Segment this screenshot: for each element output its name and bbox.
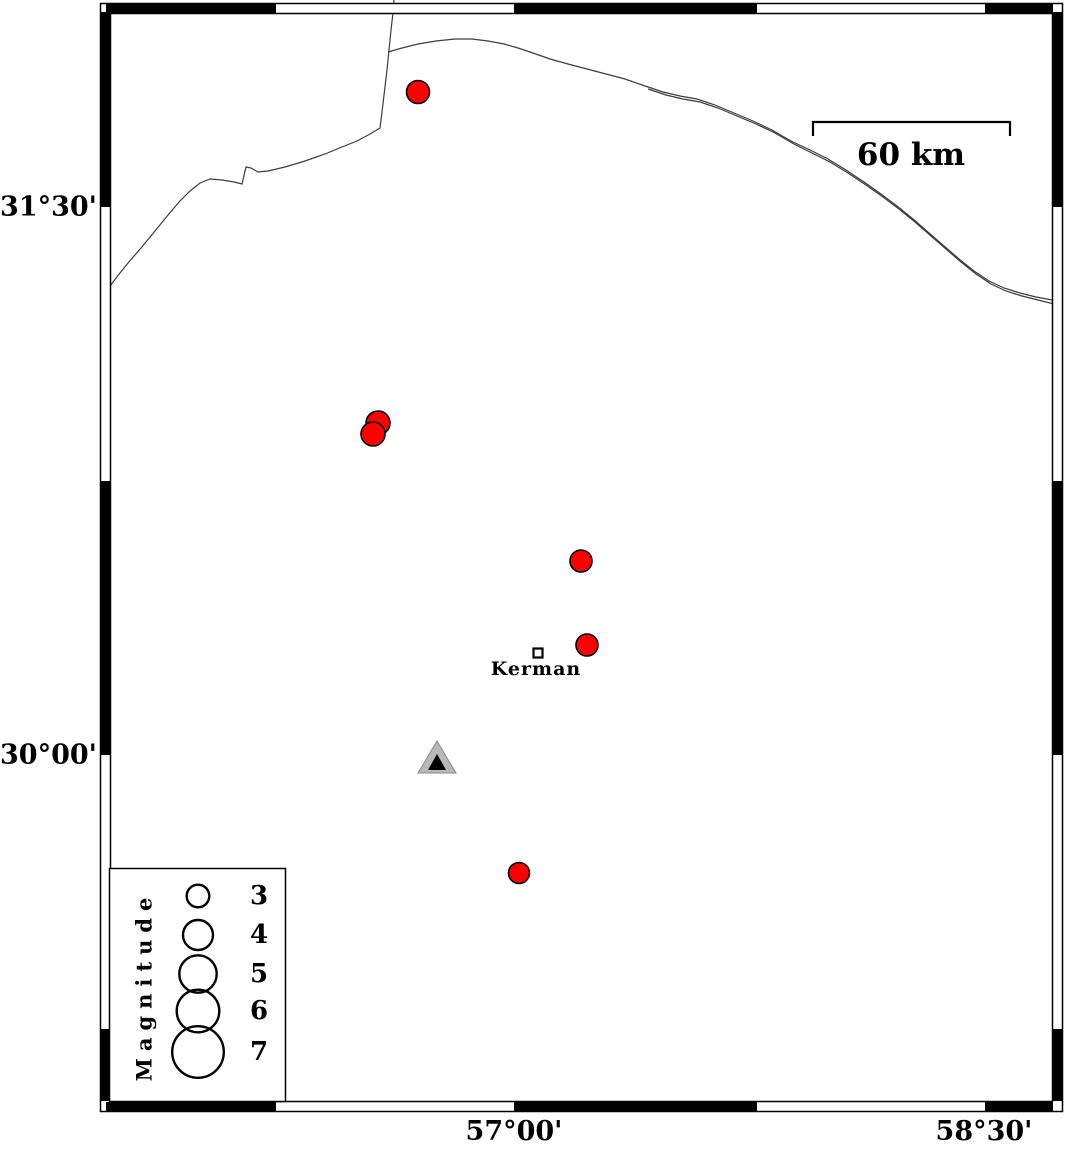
boundary-line-west [108,0,394,289]
earthquake-markers [361,81,598,884]
earthquake-epicenter [576,634,598,656]
kerman-square-marker [534,649,543,658]
latitude-label: 30°00' [0,740,92,771]
scale-bar-label: 60 km [857,137,965,173]
legend-title-magnitude: Magnitude [132,891,157,1082]
legend-magnitude-value: 6 [250,996,268,1026]
earthquake-epicenter [361,422,385,446]
legend-magnitude-value: 7 [250,1037,268,1067]
station-marker [418,741,456,773]
city-label-kerman: Kerman [491,658,581,680]
scale-bar [813,122,1010,136]
border-segment-left [101,481,110,755]
border-segment-top [514,4,757,13]
border-segment-left [101,1029,110,1101]
legend-magnitude-value: 4 [250,920,268,950]
longitude-label: 57°00' [466,1116,563,1147]
border-segment-top [106,4,276,13]
scale-bar-bracket [813,122,1010,136]
legend-magnitude-value: 3 [250,881,268,911]
border-segment-right [1053,12,1062,207]
legend-magnitude-value: 5 [250,959,268,989]
border-segment-top [985,4,1053,13]
border-segment-right [1053,1029,1062,1101]
earthquake-epicenter [407,81,430,104]
latitude-label: 31°30' [0,192,92,223]
city-marker-kerman [534,649,543,658]
seismicity-map: 60 km Kerman Magnitude 31°30'30°00' 57°0… [0,0,1066,1151]
border-segment-bottom [106,1102,276,1111]
earthquake-epicenter [509,863,530,884]
border-segment-right [1053,481,1062,755]
border-segment-left [101,12,110,207]
earthquake-epicenter [570,550,592,572]
border-segment-bottom [985,1102,1053,1111]
border-segment-bottom [514,1102,757,1111]
longitude-label: 58°30' [936,1116,1033,1147]
